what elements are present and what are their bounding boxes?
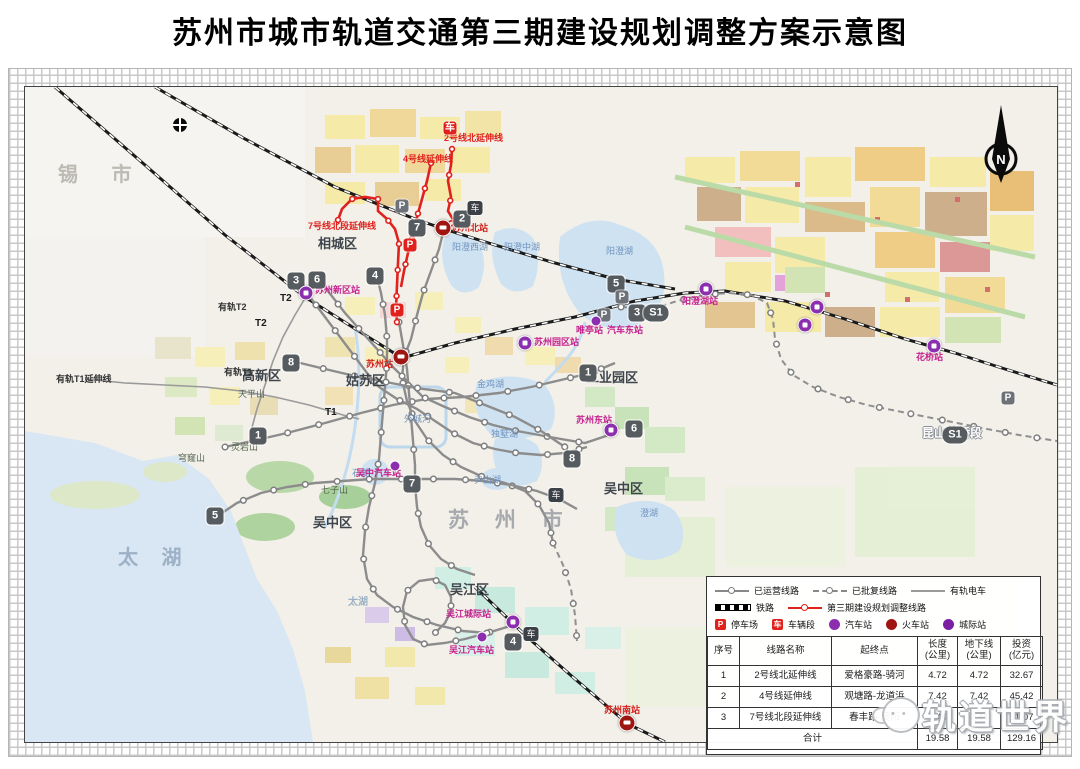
line-badge-8: 8 bbox=[283, 355, 300, 372]
train-station-icon bbox=[435, 220, 452, 237]
legend-item-operating: 已运营线路 bbox=[715, 584, 799, 597]
lake-label-taihu-east: 太湖 bbox=[348, 598, 368, 608]
station-label-wujiang-bus: 吴江汽车站 bbox=[449, 646, 494, 655]
intercity-station-icon bbox=[604, 423, 619, 438]
legend-item-bus: 汽车站 bbox=[829, 618, 872, 631]
district-label-wuzhong-e: 吴中区 bbox=[604, 482, 643, 495]
line-badge-5w: 5 bbox=[207, 508, 224, 525]
line-badge-1e: 1 bbox=[580, 365, 597, 382]
mountain-label-tianping: 天平山 bbox=[238, 390, 265, 399]
watermark-text: 轨道世界 bbox=[922, 690, 1070, 739]
planned-line-swatch bbox=[788, 604, 822, 612]
station-label-suzhou: 苏州站 bbox=[366, 360, 393, 369]
river-label-waicheng: 外城河 bbox=[404, 415, 431, 424]
tram-label-t1: 有轨T1 bbox=[224, 368, 253, 377]
operating-line-swatch bbox=[715, 587, 749, 595]
planned-line-label-line2: 2号线北延伸线 bbox=[444, 134, 503, 143]
parking-icon: P bbox=[616, 291, 629, 304]
bus-station-icon bbox=[829, 619, 840, 630]
lake-label-taihu: 太 湖 bbox=[118, 548, 191, 568]
poster: 苏州市城市轨道交通第三期建设规划调整方案示意图 bbox=[0, 0, 1080, 769]
lake-label-yinshan: 尹山湖 bbox=[474, 476, 501, 485]
railway-swatch bbox=[715, 604, 751, 611]
intercity-station-icon bbox=[518, 336, 533, 351]
intercity-station-icon bbox=[798, 318, 813, 333]
bus-station-icon bbox=[390, 461, 401, 472]
page-title: 苏州市城市轨道交通第三期建设规划调整方案示意图 bbox=[0, 8, 1080, 52]
station-label-wujiang-ic: 吴江城际站 bbox=[446, 610, 491, 619]
legend-item-intercity: 城际站 bbox=[943, 618, 986, 631]
tram-label-t2: 有轨T2 bbox=[218, 303, 247, 312]
intercity-station-icon bbox=[927, 339, 942, 354]
line-badge-7: 7 bbox=[409, 220, 426, 237]
line-badge-s1: S1 bbox=[644, 305, 669, 322]
parking-icon: P bbox=[715, 619, 726, 630]
city-label-wuxi: 锡 市 bbox=[58, 165, 146, 185]
city-label-suzhou: 苏 州 市 bbox=[448, 510, 573, 531]
lake-label-cheng: 澄湖 bbox=[640, 509, 658, 518]
station-label-yangchenghu: 阳澄湖站 bbox=[682, 297, 718, 306]
tram-line-swatch bbox=[911, 587, 945, 595]
line-badge-4s: 4 bbox=[505, 634, 522, 651]
intercity-station-icon bbox=[699, 282, 714, 297]
bus-station-icon bbox=[591, 316, 602, 327]
mountain-label-qionglong: 穹窿山 bbox=[178, 454, 205, 463]
railway-station-icon: 车 bbox=[468, 201, 483, 215]
watermark: 轨道世界 bbox=[872, 690, 1070, 739]
approved-line-swatch bbox=[813, 587, 847, 595]
planned-line-label-line7: 7号线北段延伸线 bbox=[308, 222, 376, 231]
lake-label-jinji: 金鸡湖 bbox=[477, 380, 504, 389]
line-badge-8e: 8 bbox=[564, 451, 581, 468]
legend-item-depot: 车 车辆段 bbox=[772, 618, 815, 631]
train-station-icon bbox=[619, 715, 636, 732]
train-station-icon bbox=[393, 349, 410, 366]
district-label-wujiang: 吴江区 bbox=[450, 583, 489, 596]
railway-station-icon: 车 bbox=[524, 627, 539, 641]
station-label-weiting: 唯亭站 bbox=[576, 326, 603, 335]
tram-label-t1-ext: 有轨T1延伸线 bbox=[56, 375, 112, 384]
table-header-row: 序号 线路名称 起终点 长度(公里) 地下线(公里) 投资(亿元) bbox=[708, 637, 1043, 666]
table-row: 12号线北延伸线爱格豪路-骑河 4.724.7232.67 bbox=[708, 666, 1043, 687]
line-badge-7s: 7 bbox=[404, 476, 421, 493]
station-label-yuanqu: 苏州园区站 bbox=[534, 338, 579, 347]
station-label-qiche-east: 汽车东站 bbox=[607, 326, 643, 335]
legend-item-approved: 已批复线路 bbox=[813, 584, 897, 597]
parking-icon: P bbox=[396, 200, 409, 213]
line-badge-4: 4 bbox=[367, 268, 384, 285]
intercity-station-icon bbox=[506, 615, 521, 630]
depot-parking-icon: P bbox=[391, 304, 404, 317]
depot-icon: 车 bbox=[772, 619, 783, 630]
line-badge-1: 1 bbox=[250, 428, 267, 445]
legend-item-railway: 铁路 bbox=[715, 601, 774, 614]
intercity-station-icon bbox=[943, 619, 954, 630]
lake-label-yangcheng: 阳澄湖 bbox=[606, 247, 633, 256]
tram-badge-t2a: T2 bbox=[280, 294, 292, 304]
lake-label-yangcheng-west: 阳澄西湖 bbox=[452, 243, 488, 252]
intercity-station-icon bbox=[810, 300, 825, 315]
parking-icon: P bbox=[1002, 392, 1015, 405]
legend-item-tram: 有轨电车 bbox=[911, 584, 986, 597]
watermark-logo-icon bbox=[872, 695, 916, 735]
bus-station-icon bbox=[477, 632, 488, 643]
line-badge-6e: 6 bbox=[626, 421, 643, 438]
district-label-wuzhong-w: 吴中区 bbox=[313, 516, 352, 529]
legend: 已运营线路 已批复线路 有轨电车 铁路 第三期建设规划调整线 bbox=[707, 577, 1040, 636]
station-label-suzhou-south: 苏州南站 bbox=[604, 706, 640, 715]
vehicle-depot-icon: 车 bbox=[444, 122, 457, 135]
line-badge-6: 6 bbox=[309, 272, 326, 289]
legend-item-train: 火车站 bbox=[886, 618, 929, 631]
legend-item-parking: P 停车场 bbox=[715, 618, 758, 631]
legend-item-planned: 第三期建设规划调整线路 bbox=[788, 601, 926, 614]
mountain-label-qizi: 七子山 bbox=[321, 486, 348, 495]
depot-parking-icon: P bbox=[404, 239, 417, 252]
railway-station-icon: 车 bbox=[549, 488, 564, 502]
tram-badge-t2b: T2 bbox=[255, 319, 267, 329]
district-label-gusu: 姑苏区 bbox=[346, 374, 385, 387]
tram-badge-t1: T1 bbox=[325, 408, 337, 418]
railway-junction-icon bbox=[173, 118, 187, 132]
station-label-huaqiao: 花桥站 bbox=[916, 353, 943, 362]
lake-label-dushu: 独墅湖 bbox=[491, 430, 518, 439]
planned-line-label-line4: 4号线延伸线 bbox=[403, 155, 453, 164]
intercity-station-icon bbox=[299, 286, 314, 301]
lake-label-yangcheng-mid: 阳澄中湖 bbox=[504, 243, 540, 252]
svg-text:N: N bbox=[996, 152, 1005, 167]
line-badge-s1e: S1 bbox=[943, 427, 968, 444]
district-label-xiangcheng: 相城区 bbox=[318, 237, 357, 250]
train-station-icon bbox=[886, 619, 897, 630]
